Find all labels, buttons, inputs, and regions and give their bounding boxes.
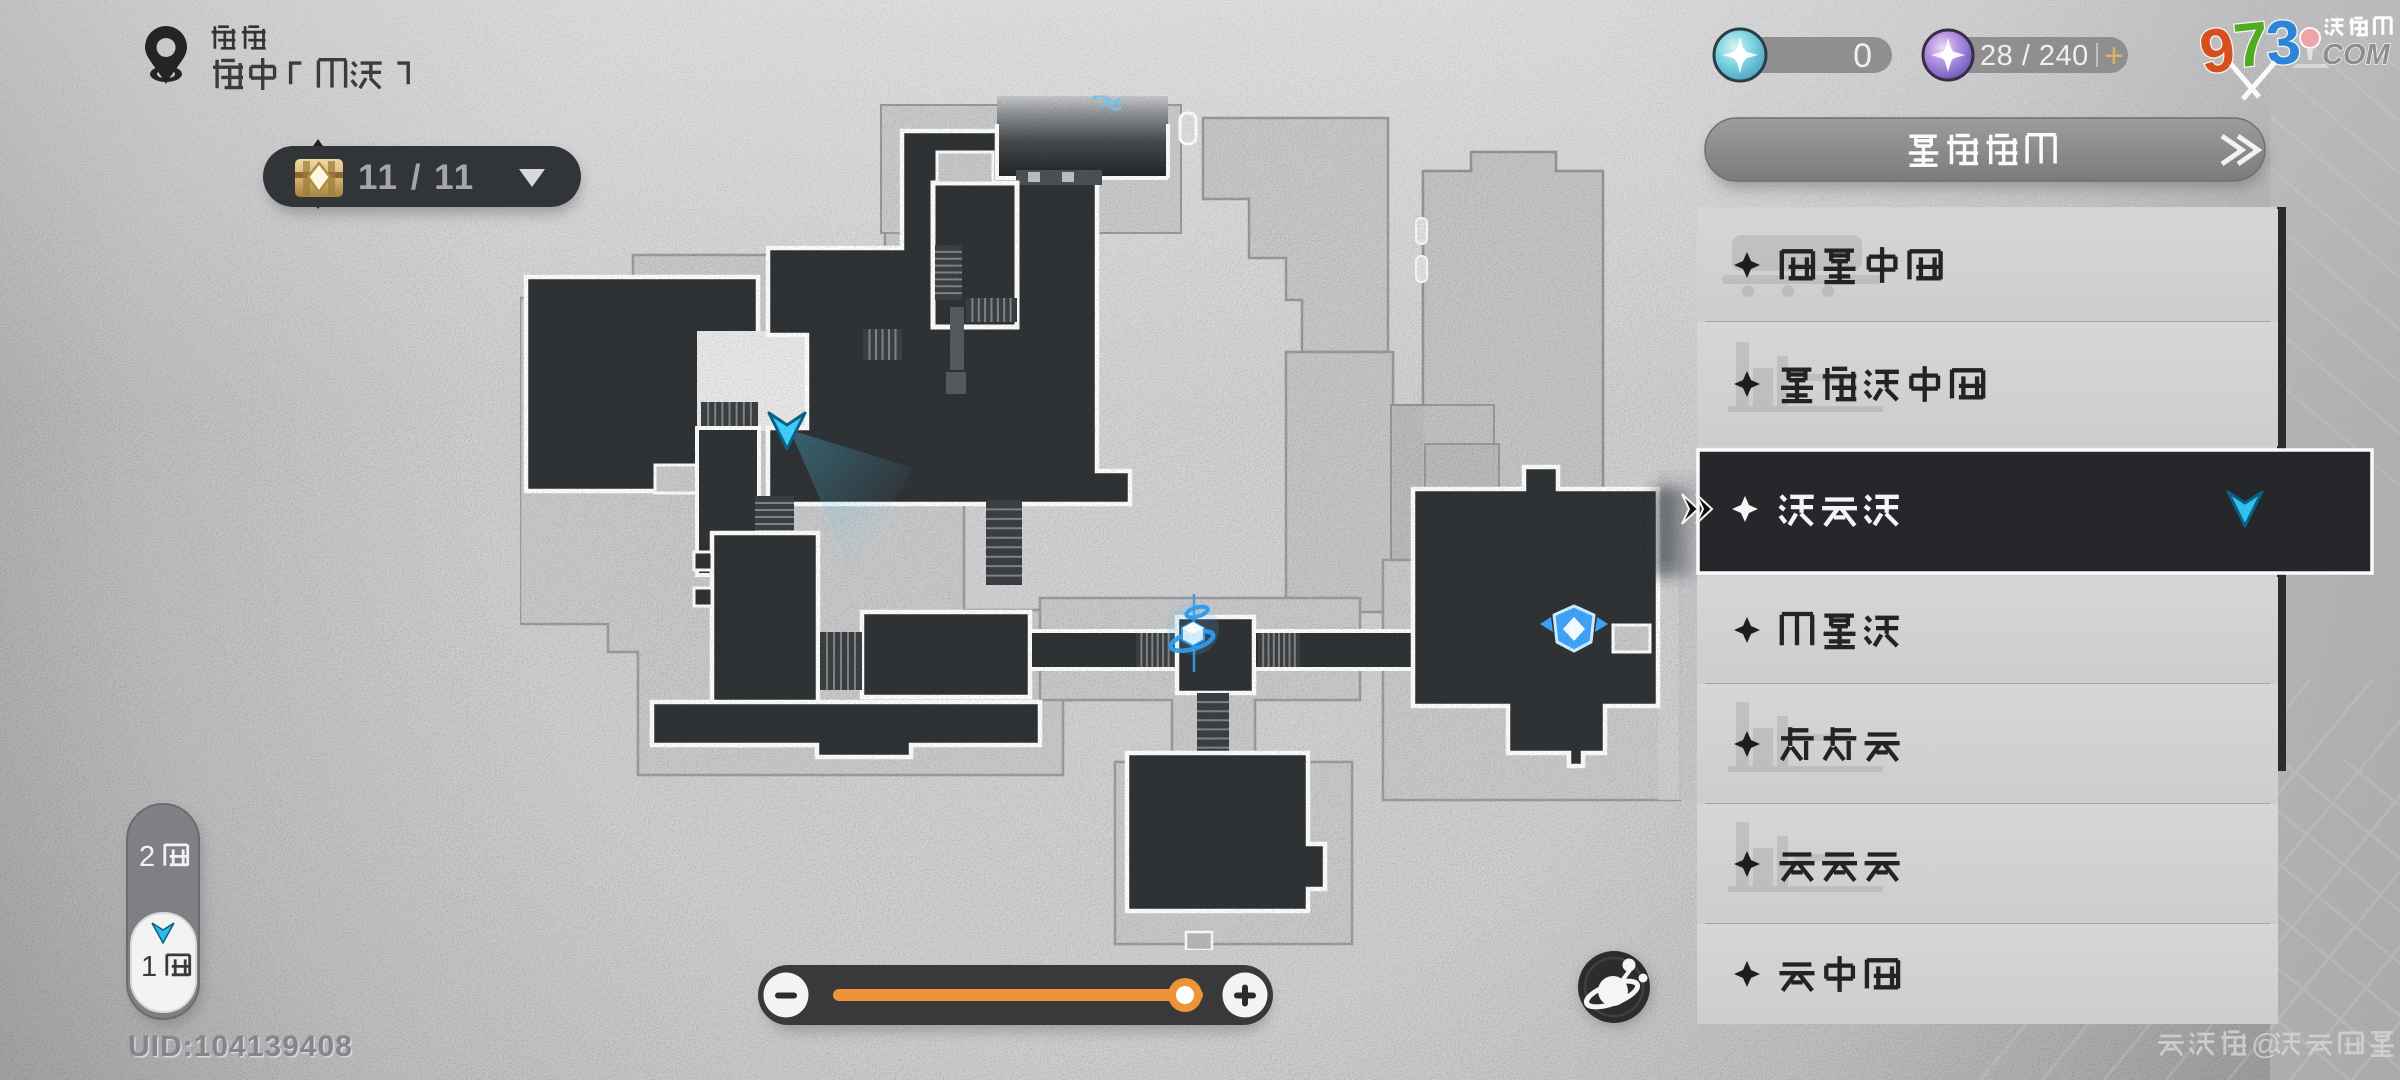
svg-text:@: @ [2251,1029,2280,1061]
svg-text:0: 0 [1853,37,1872,75]
svg-text:UID:104139408: UID:104139408 [128,1030,353,1063]
svg-text:1: 1 [141,951,157,983]
svg-text:28 / 240: 28 / 240 [1980,40,2089,72]
svg-text:11 / 11: 11 / 11 [358,158,475,197]
svg-text:COM: COM [2322,39,2391,71]
svg-text:+: + [2104,37,2124,75]
svg-text:2: 2 [139,841,155,873]
